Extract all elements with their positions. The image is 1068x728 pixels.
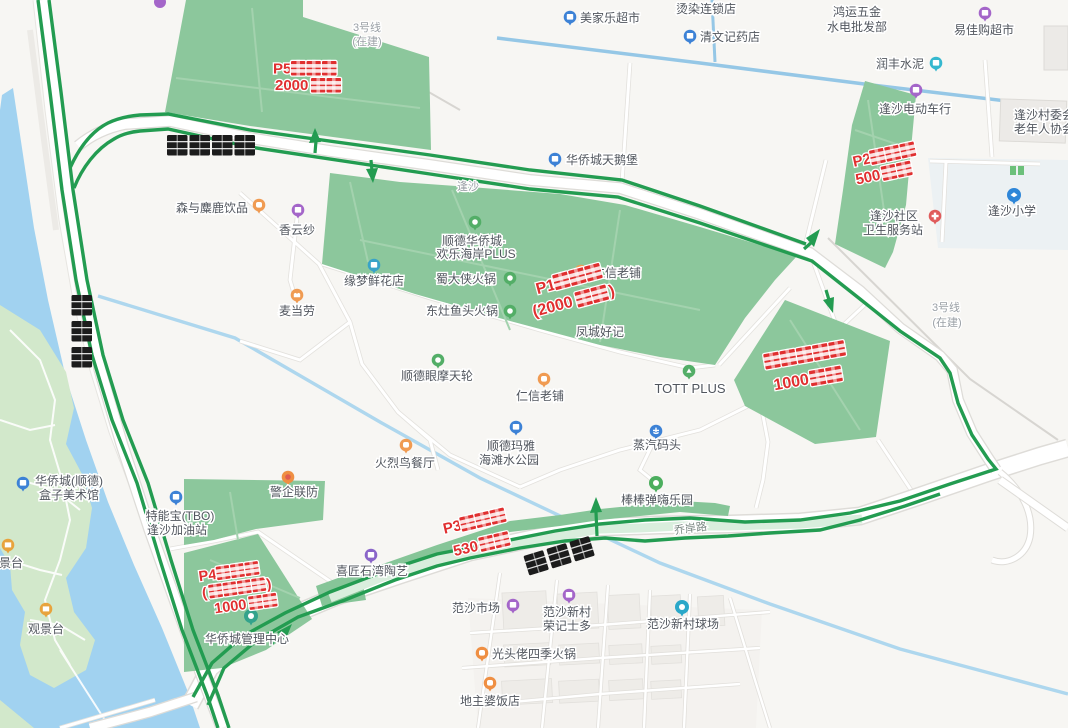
svg-text:(在建): (在建) <box>932 315 961 329</box>
svg-text:逢沙电动车行: 逢沙电动车行 <box>879 101 951 116</box>
svg-text:地主婆饭店: 地主婆饭店 <box>460 694 520 708</box>
svg-text:景台: 景台 <box>0 555 23 570</box>
svg-text:顺德玛雅: 顺德玛雅 <box>487 438 535 453</box>
svg-text:顺德眼摩天轮: 顺德眼摩天轮 <box>401 368 473 383</box>
svg-text:森与麋鹿饮品: 森与麋鹿饮品 <box>176 200 248 215</box>
svg-text:范沙新村: 范沙新村 <box>543 604 591 619</box>
svg-text:TOTT PLUS: TOTT PLUS <box>654 381 725 396</box>
svg-text:华侨城(顺德): 华侨城(顺德) <box>35 473 103 488</box>
svg-text:盒子美术馆: 盒子美术馆 <box>39 487 99 502</box>
svg-text:(在建): (在建) <box>352 34 381 48</box>
svg-text:卫生服务站: 卫生服务站 <box>863 222 923 237</box>
svg-text:缘梦鲜花店: 缘梦鲜花店 <box>344 273 404 288</box>
svg-text:老年人协会: 老年人协会 <box>1014 121 1068 136</box>
svg-text:观景台: 观景台 <box>28 621 64 636</box>
svg-text:仁信老铺: 仁信老铺 <box>516 389 564 403</box>
svg-text:3号线: 3号线 <box>353 20 381 34</box>
svg-text:逢沙村委会: 逢沙村委会 <box>1014 108 1068 122</box>
svg-text:蜀大侠火锅: 蜀大侠火锅 <box>436 271 496 286</box>
svg-text:麦当劳: 麦当劳 <box>279 304 315 318</box>
svg-text:特能宝(TBO): 特能宝(TBO) <box>146 508 215 523</box>
svg-text:逢沙加油站: 逢沙加油站 <box>147 523 207 537</box>
svg-text:蒸汽码头: 蒸汽码头 <box>633 437 681 452</box>
svg-text:火烈鸟餐厅: 火烈鸟餐厅 <box>375 455 435 470</box>
svg-text:欢乐海岸PLUS: 欢乐海岸PLUS <box>436 246 515 261</box>
svg-text:东灶鱼头火锅: 东灶鱼头火锅 <box>426 303 498 318</box>
svg-text:香云纱: 香云纱 <box>279 223 315 237</box>
svg-text:凤城好记: 凤城好记 <box>576 325 624 339</box>
svg-text:鸿运五金: 鸿运五金 <box>833 4 881 19</box>
svg-text:逢沙小学: 逢沙小学 <box>988 203 1036 218</box>
svg-text:荣记士多: 荣记士多 <box>543 619 591 633</box>
svg-text:华侨城管理中心: 华侨城管理中心 <box>205 631 289 646</box>
svg-text:2000: 2000 <box>275 77 308 94</box>
svg-text:喜匠石湾陶艺: 喜匠石湾陶艺 <box>336 563 408 578</box>
svg-text:美家乐超市: 美家乐超市 <box>580 10 640 25</box>
svg-text:逢沙: 逢沙 <box>457 180 479 193</box>
svg-text:润丰水泥: 润丰水泥 <box>876 57 924 71</box>
svg-text:P5: P5 <box>273 61 291 78</box>
svg-text:3号线: 3号线 <box>932 300 960 314</box>
svg-text:棒棒弹嗨乐园: 棒棒弹嗨乐园 <box>621 493 693 507</box>
svg-text:华侨城天鹅堡: 华侨城天鹅堡 <box>566 152 638 167</box>
svg-text:P4: P4 <box>198 567 218 585</box>
svg-text:逢沙社区: 逢沙社区 <box>870 208 918 223</box>
svg-text:海滩水公园: 海滩水公园 <box>479 452 539 467</box>
svg-text:烫染连锁店: 烫染连锁店 <box>676 1 736 16</box>
svg-text:光头佬四季火锅: 光头佬四季火锅 <box>492 646 576 661</box>
svg-text:范沙市场: 范沙市场 <box>452 600 500 615</box>
svg-text:易佳购超市: 易佳购超市 <box>954 22 1014 37</box>
svg-text:顺德华侨城·: 顺德华侨城· <box>442 233 506 248</box>
svg-text:范沙新村球场: 范沙新村球场 <box>647 616 719 631</box>
svg-text:清文记药店: 清文记药店 <box>700 29 760 44</box>
svg-text:警企联防: 警企联防 <box>270 484 318 499</box>
svg-text:水电批发部: 水电批发部 <box>827 19 887 34</box>
